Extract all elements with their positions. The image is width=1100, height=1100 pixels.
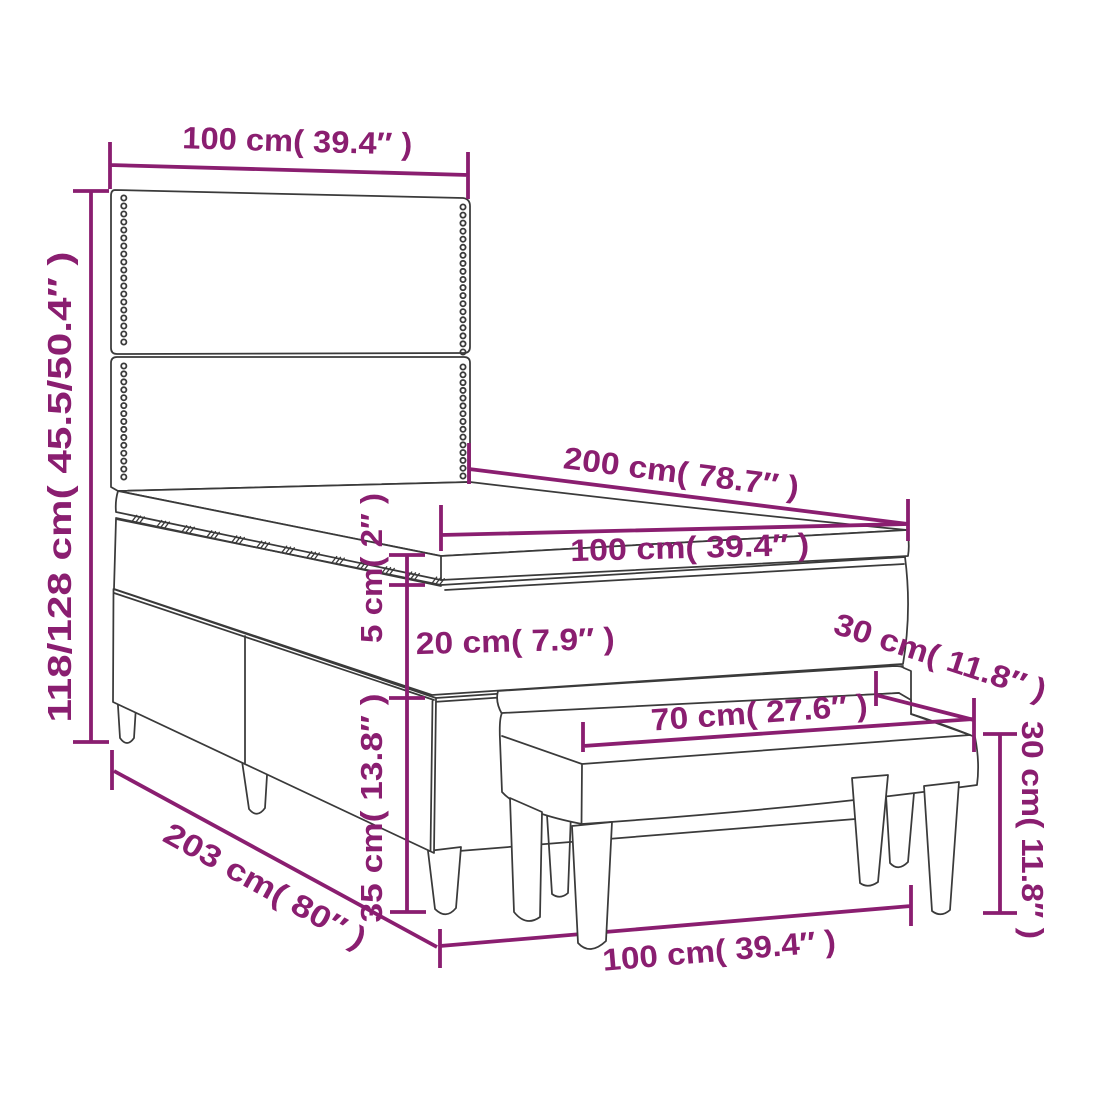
svg-text:5 cm( 2″ ): 5 cm( 2″ ) (354, 493, 389, 643)
svg-text:35 cm( 13.8″ ): 35 cm( 13.8″ ) (354, 694, 389, 923)
svg-text:100 cm( 39.4″ ): 100 cm( 39.4″ ) (182, 120, 413, 161)
svg-text:100 cm( 39.4″ ): 100 cm( 39.4″ ) (570, 527, 810, 568)
svg-text:20 cm( 7.9″ ): 20 cm( 7.9″ ) (415, 621, 615, 661)
svg-text:30 cm( 11.8″ ): 30 cm( 11.8″ ) (1015, 721, 1050, 939)
svg-text:118/128 cm( 45.5/50.4″ ): 118/128 cm( 45.5/50.4″ ) (41, 251, 78, 722)
